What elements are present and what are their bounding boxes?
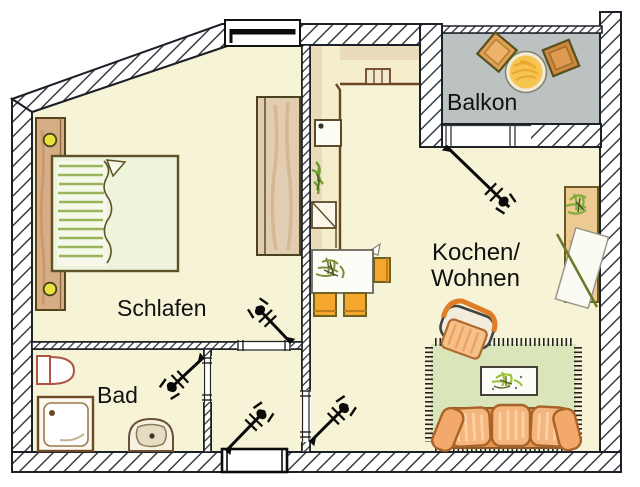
svg-text:Wohnen: Wohnen	[431, 265, 520, 292]
svg-text:Bad: Bad	[97, 382, 138, 408]
svg-text:Kochen/: Kochen/	[432, 239, 520, 266]
svg-text:Balkon: Balkon	[447, 89, 517, 115]
svg-text:Schlafen: Schlafen	[117, 295, 207, 321]
